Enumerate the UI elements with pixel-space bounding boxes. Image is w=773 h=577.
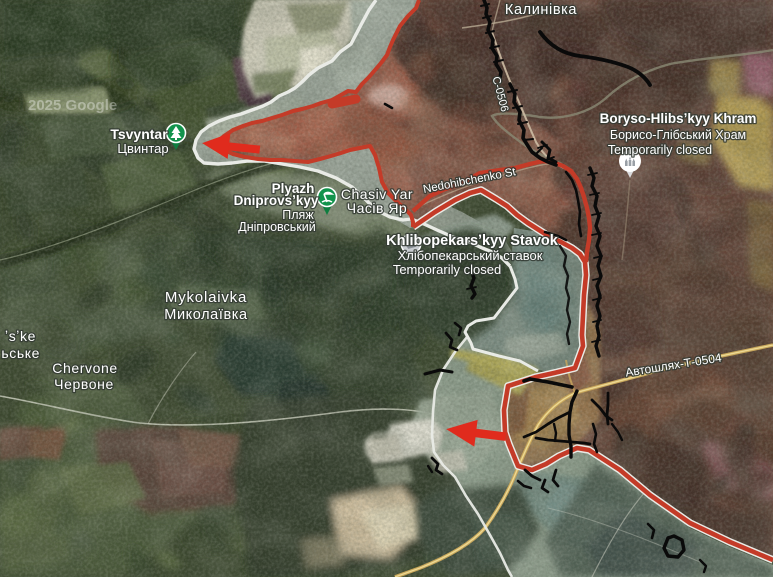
svg-text:Boryso-Hlibsʼkyy Khram: Boryso-Hlibsʼkyy Khram (600, 111, 757, 126)
svg-text:Dniprovsʼkyy: Dniprovsʼkyy (234, 193, 319, 208)
svg-text:ьське: ьське (1, 345, 40, 361)
svg-text:Червоне: Червоне (54, 376, 114, 392)
svg-text:Temporarily closed: Temporarily closed (393, 262, 501, 277)
svg-text:Хлібопекарський ставок: Хлібопекарський ставок (398, 248, 543, 263)
svg-text:Миколаївка: Миколаївка (164, 307, 248, 323)
svg-text:Khlibopekarsʼkyy Stavok: Khlibopekarsʼkyy Stavok (386, 233, 559, 249)
svg-text:Дніпровський: Дніпровський (238, 220, 316, 234)
svg-text:Chervone: Chervone (52, 360, 118, 376)
svg-text:Борисо-Глібський Храм: Борисо-Глібський Храм (610, 128, 746, 142)
svg-text:Калинівка: Калинівка (505, 2, 577, 18)
svg-text:2025 Google: 2025 Google (28, 97, 117, 114)
svg-text:Цвинтар: Цвинтар (117, 141, 168, 156)
svg-text:Tsvyntar: Tsvyntar (110, 126, 168, 142)
svg-text:Mykolaivka: Mykolaivka (165, 289, 247, 306)
svg-text:ʼsʼke: ʼsʼke (5, 328, 36, 344)
svg-text:Temporarily closed: Temporarily closed (608, 143, 712, 157)
svg-text:Часів Яр: Часів Яр (347, 200, 407, 216)
